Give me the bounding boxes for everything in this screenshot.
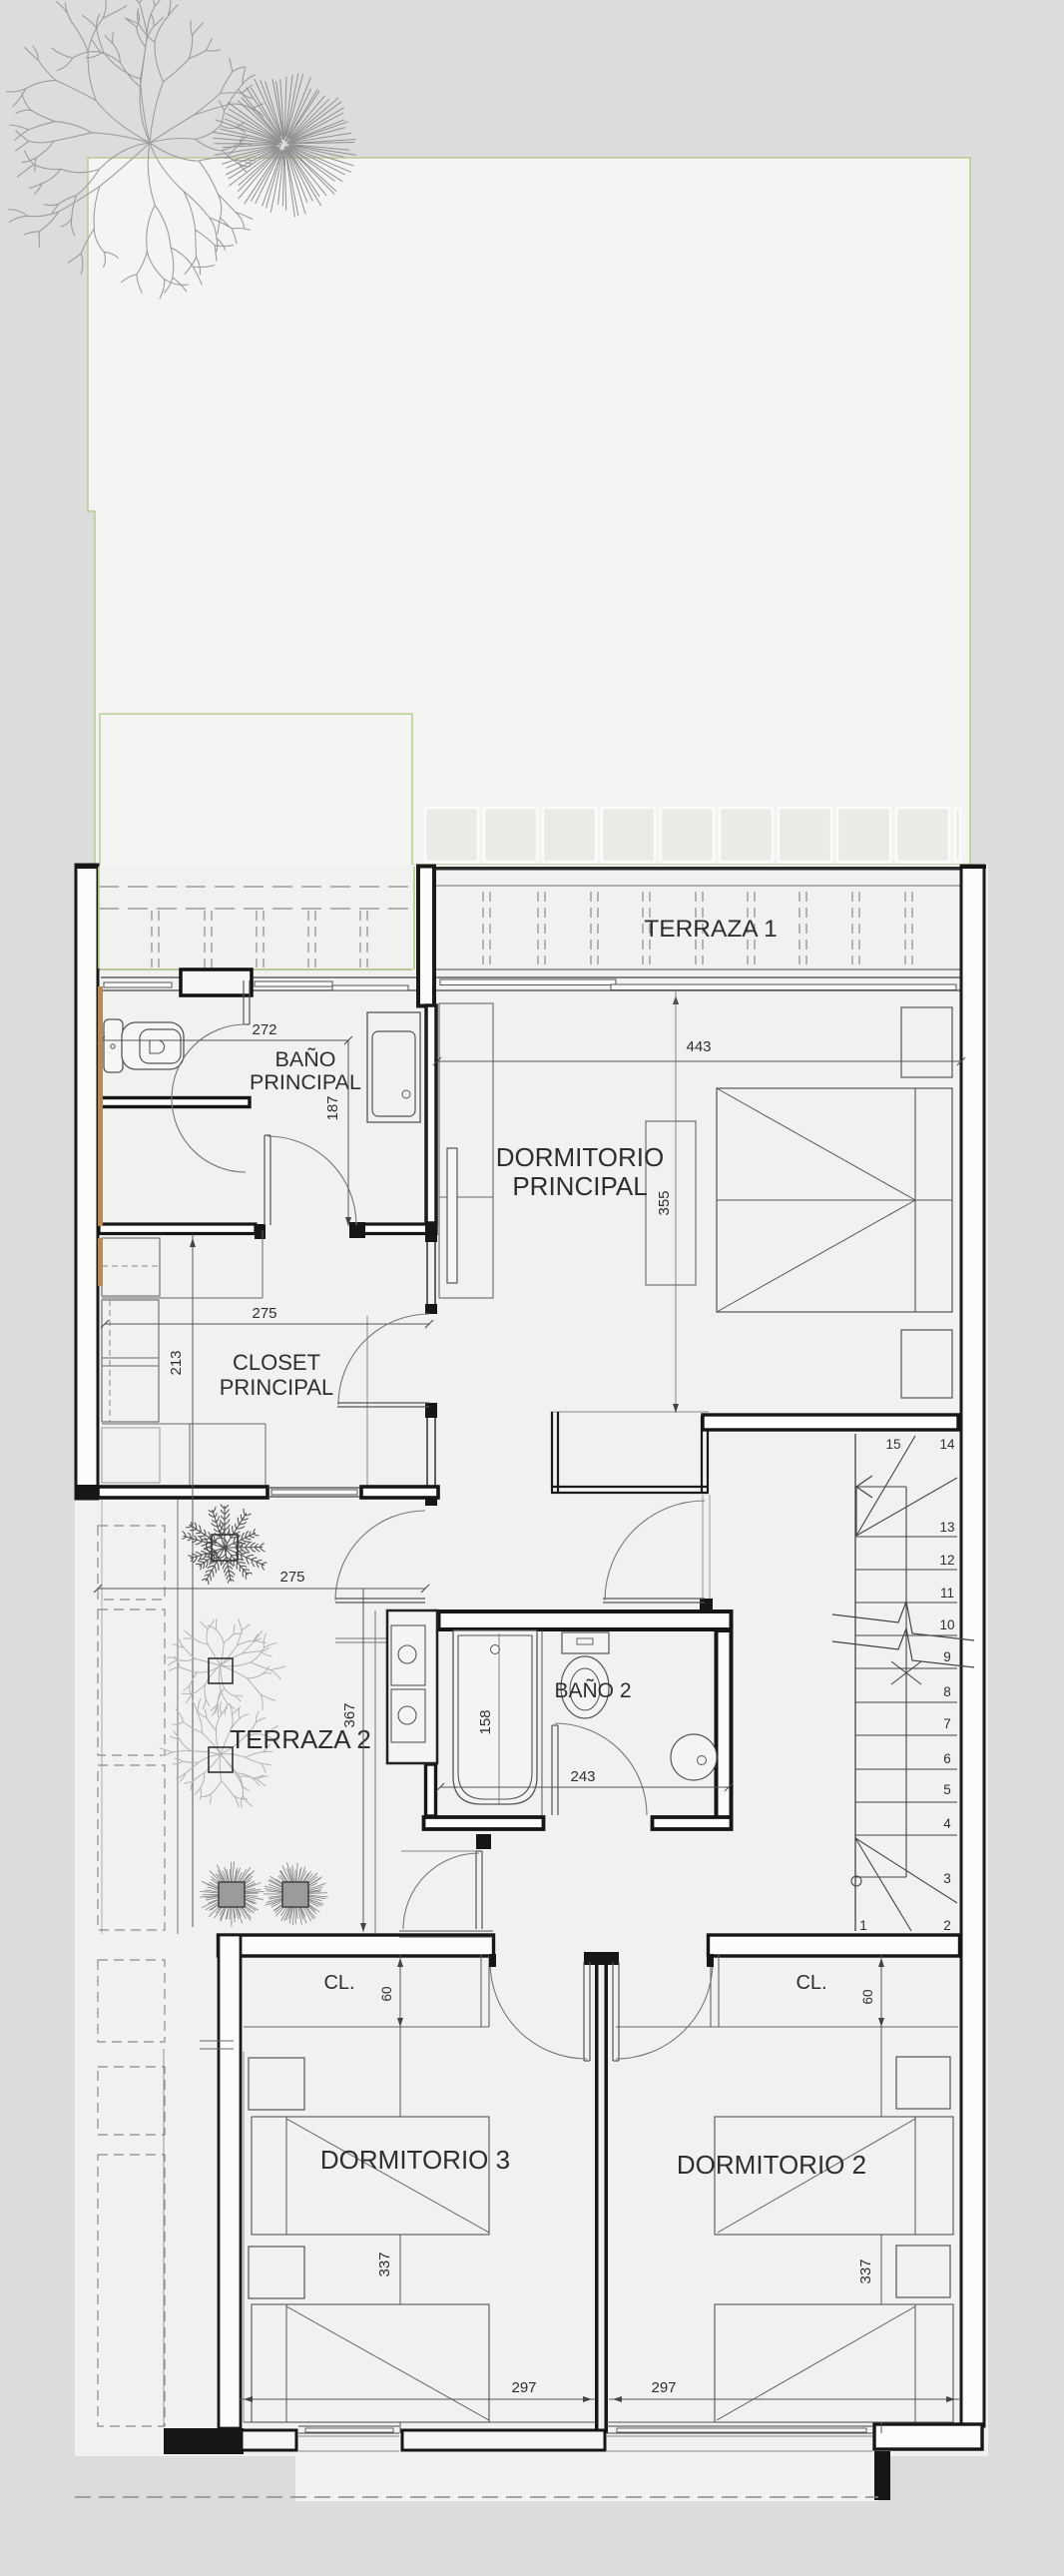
svg-text:14: 14 <box>939 1437 955 1452</box>
svg-text:297: 297 <box>651 2379 676 2396</box>
svg-text:CLOSET: CLOSET <box>233 1350 320 1375</box>
svg-text:297: 297 <box>511 2379 536 2396</box>
svg-text:CL.: CL. <box>796 1972 826 1994</box>
svg-text:PRINCIPAL: PRINCIPAL <box>220 1375 334 1400</box>
svg-text:4: 4 <box>943 1816 951 1831</box>
svg-text:187: 187 <box>324 1095 341 1120</box>
svg-text:355: 355 <box>656 1190 673 1215</box>
svg-text:443: 443 <box>686 1038 711 1055</box>
svg-text:DORMITORIO: DORMITORIO <box>496 1142 665 1172</box>
svg-text:DORMITORIO 2: DORMITORIO 2 <box>677 2150 866 2180</box>
svg-text:CL.: CL. <box>323 1972 354 1994</box>
svg-text:1: 1 <box>859 1918 867 1933</box>
svg-text:9: 9 <box>943 1649 951 1664</box>
svg-text:BAÑO: BAÑO <box>275 1046 336 1071</box>
svg-text:12: 12 <box>939 1553 954 1568</box>
svg-text:275: 275 <box>279 1569 304 1586</box>
svg-text:PRINCIPAL: PRINCIPAL <box>512 1171 647 1201</box>
svg-text:275: 275 <box>252 1305 276 1322</box>
svg-text:15: 15 <box>885 1437 900 1452</box>
svg-text:60: 60 <box>860 1989 875 2004</box>
svg-text:367: 367 <box>341 1702 358 1727</box>
svg-text:TERRAZA 1: TERRAZA 1 <box>644 916 777 943</box>
svg-text:PRINCIPAL: PRINCIPAL <box>250 1070 361 1094</box>
svg-text:337: 337 <box>376 2252 393 2276</box>
svg-text:272: 272 <box>252 1021 276 1038</box>
svg-text:10: 10 <box>939 1617 954 1632</box>
svg-text:213: 213 <box>168 1350 185 1375</box>
svg-text:243: 243 <box>570 1768 595 1785</box>
svg-text:2: 2 <box>943 1918 951 1933</box>
svg-text:7: 7 <box>943 1716 951 1731</box>
svg-text:11: 11 <box>940 1586 954 1601</box>
svg-text:DORMITORIO 3: DORMITORIO 3 <box>320 2145 510 2175</box>
svg-text:60: 60 <box>379 1986 394 2001</box>
svg-text:8: 8 <box>943 1684 951 1699</box>
svg-text:337: 337 <box>857 2258 874 2283</box>
svg-text:BAÑO 2: BAÑO 2 <box>554 1678 631 1702</box>
svg-text:6: 6 <box>943 1751 951 1766</box>
svg-text:3: 3 <box>943 1871 951 1886</box>
svg-text:13: 13 <box>939 1520 954 1535</box>
svg-text:5: 5 <box>943 1782 951 1797</box>
svg-text:158: 158 <box>477 1709 494 1734</box>
